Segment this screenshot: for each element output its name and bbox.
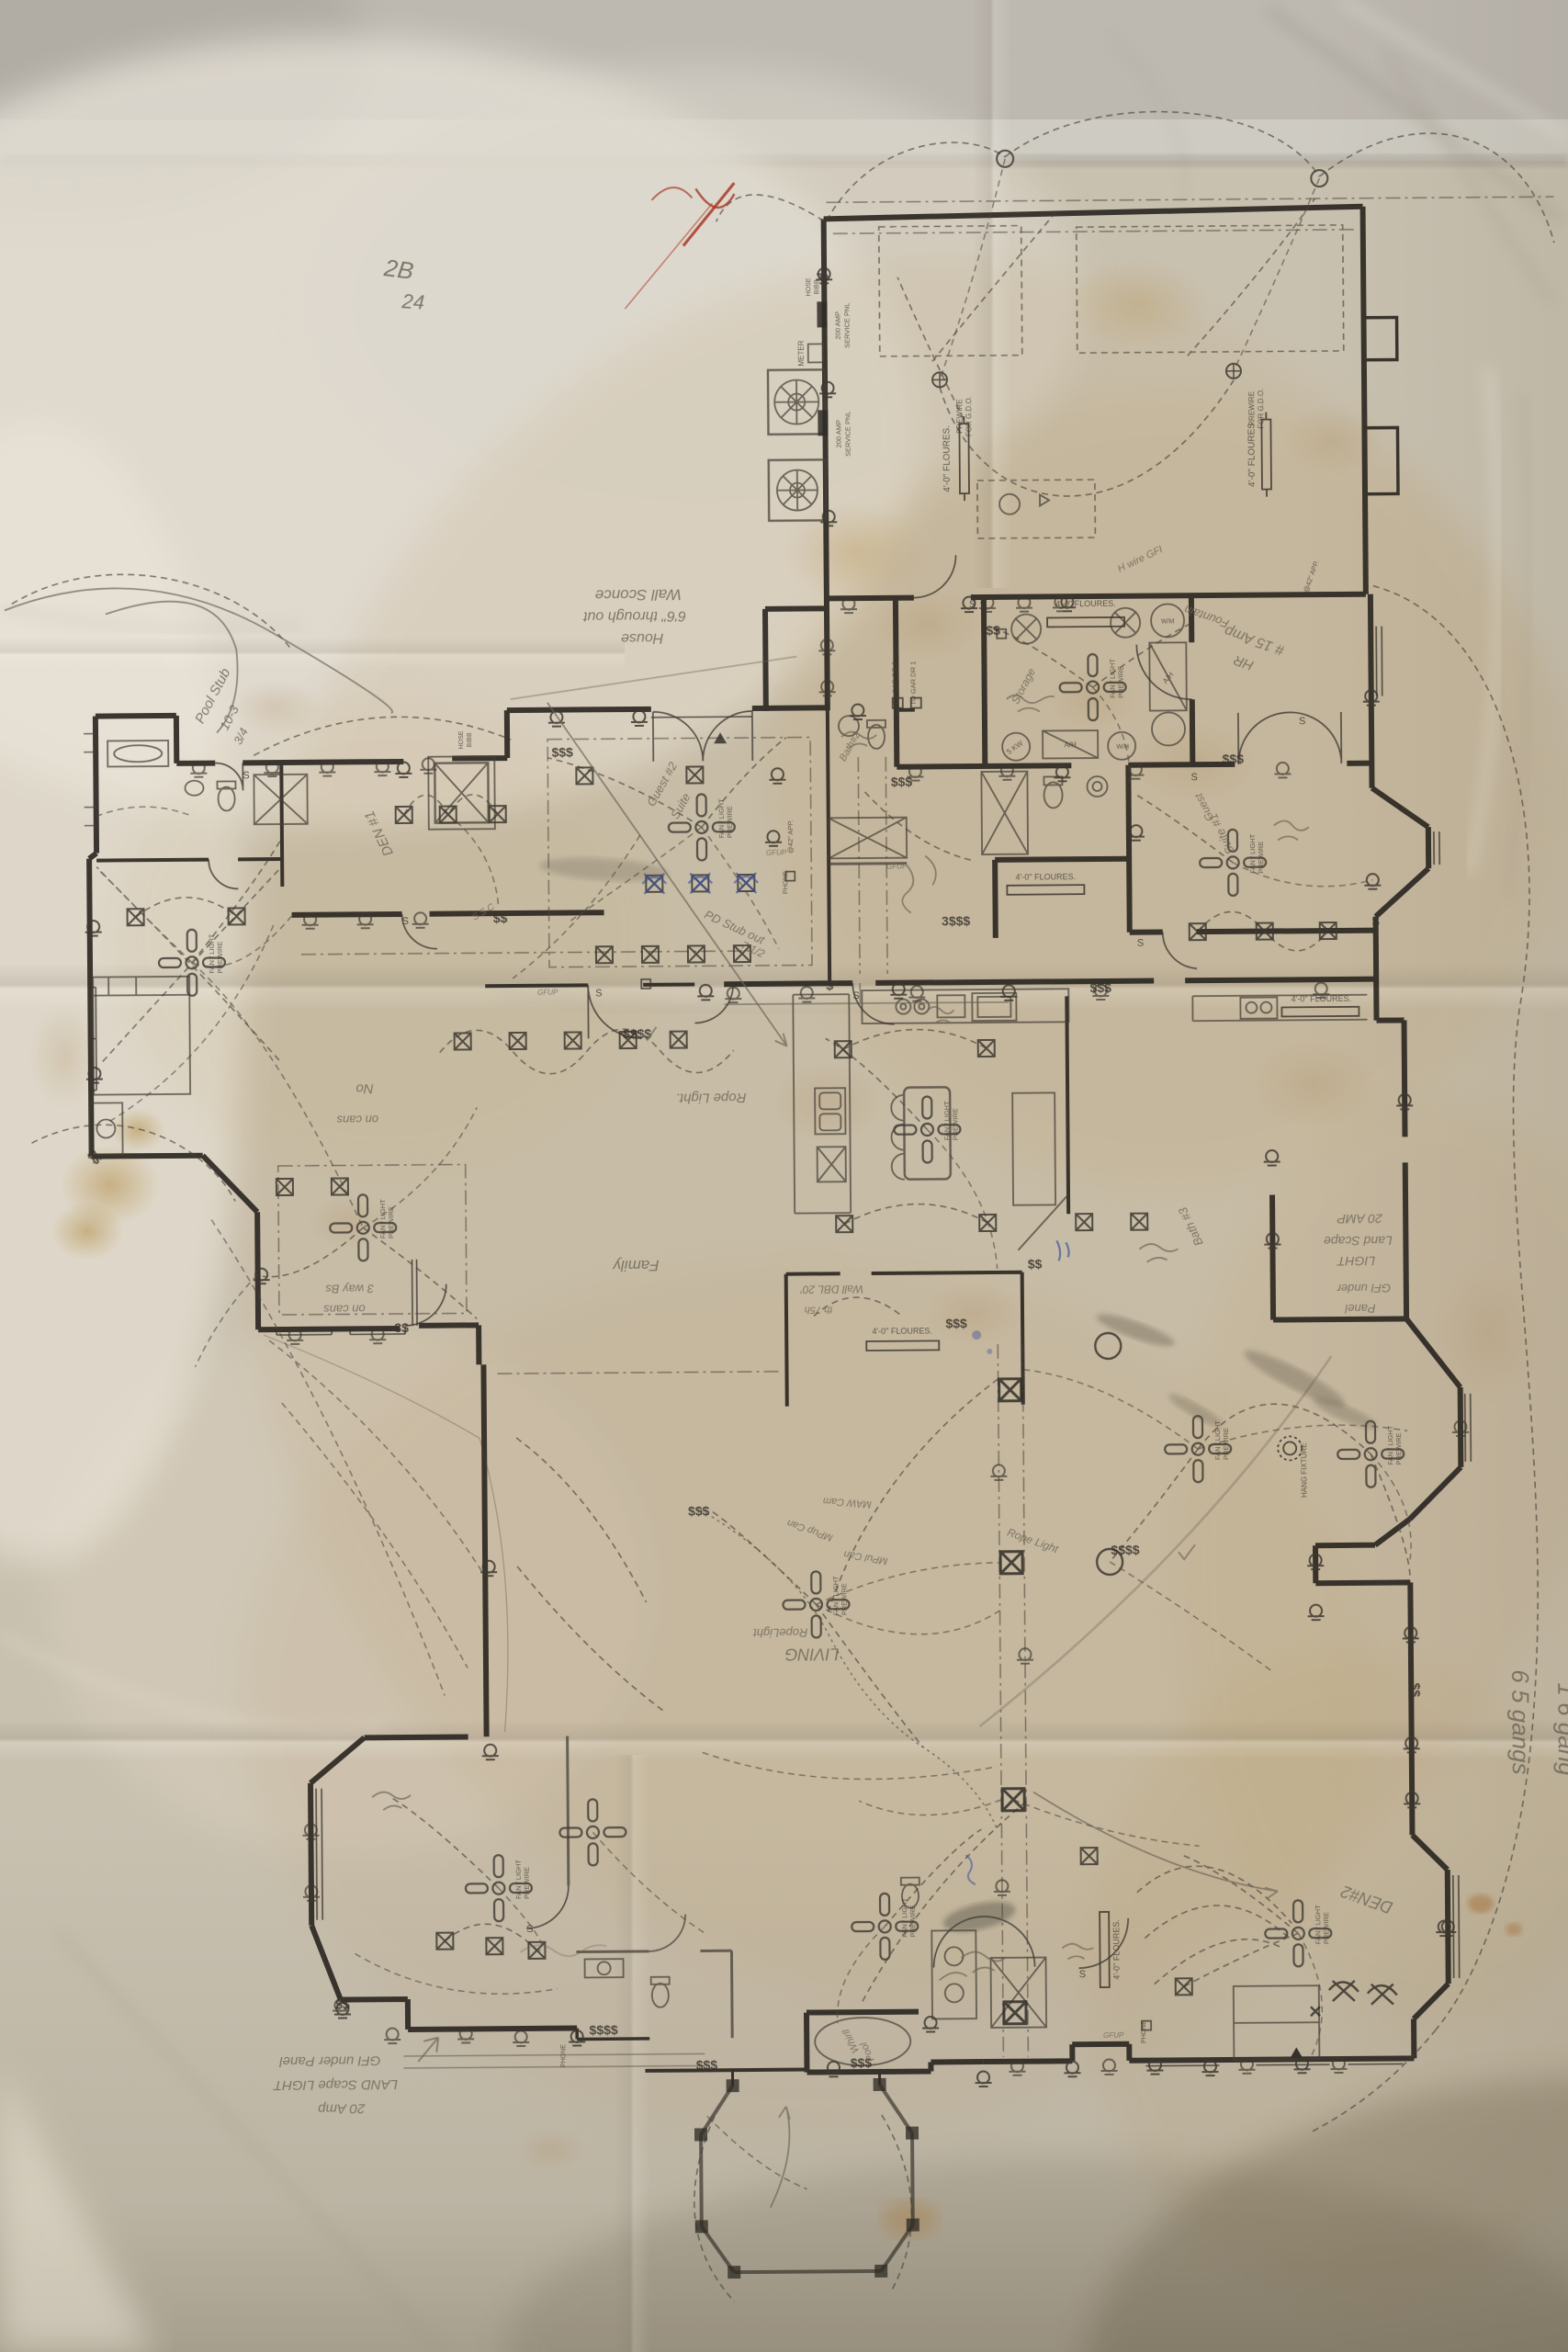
svg-text:GFI under: GFI under xyxy=(1337,1282,1391,1295)
svg-text:on cans: on cans xyxy=(323,1302,366,1316)
svg-text:$$$$: $$$$ xyxy=(1111,1543,1139,1557)
svg-text:FAN / LIGHT: FAN / LIGHT xyxy=(942,1101,951,1140)
svg-text:FAN / LIGHT: FAN / LIGHT xyxy=(378,1199,387,1238)
svg-text:3$: 3$ xyxy=(394,1320,409,1335)
svg-text:FAN / LIGHT: FAN / LIGHT xyxy=(1248,833,1257,873)
svg-text:FAN / LIGHT: FAN / LIGHT xyxy=(831,1576,840,1615)
svg-text:METER: METER xyxy=(797,340,806,366)
svg-text:PREWIRE: PREWIRE xyxy=(840,1583,848,1615)
svg-text:TO GAR DR 2: TO GAR DR 2 xyxy=(890,661,898,706)
svg-text:6 5 gangs: 6 5 gangs xyxy=(1506,1669,1535,1774)
svg-text:PREWIRE: PREWIRE xyxy=(1257,842,1265,874)
svg-text:SERVICE PNL: SERVICE PNL xyxy=(842,302,851,348)
svg-text:20 AMP: 20 AMP xyxy=(1337,1212,1383,1227)
svg-text:th 75h: th 75h xyxy=(805,1304,833,1315)
svg-text:PREWIRE: PREWIRE xyxy=(1322,1912,1330,1944)
svg-text:on cans: on cans xyxy=(336,1113,378,1126)
svg-text:FAN / LIGHT: FAN / LIGHT xyxy=(717,798,726,838)
svg-text:No: No xyxy=(355,1080,373,1096)
svg-text:PREWIRE: PREWIRE xyxy=(523,1867,531,1899)
svg-text:3$$$: 3$$$ xyxy=(942,913,970,928)
svg-text:1 6 gang: 1 6 gang xyxy=(1552,1682,1568,1776)
svg-text:PREWIRE: PREWIRE xyxy=(908,1905,917,1938)
svg-text:GFUP: GFUP xyxy=(537,989,558,997)
svg-text:RopeLight: RopeLight xyxy=(752,1626,808,1640)
svg-text:FAN / LIGHT: FAN / LIGHT xyxy=(900,1897,908,1937)
svg-text:$$$: $$$ xyxy=(1089,980,1111,995)
svg-text:S: S xyxy=(852,990,859,1001)
svg-text:PHONE: PHONE xyxy=(1141,2020,1147,2043)
svg-text:4'-0" FLOURES.: 4'-0" FLOURES. xyxy=(1016,872,1077,882)
svg-text:S: S xyxy=(595,988,602,999)
svg-text:$$$: $$$ xyxy=(688,1503,710,1518)
svg-text:FAN / LIGHT: FAN / LIGHT xyxy=(1314,1905,1322,1944)
svg-text:S: S xyxy=(1299,716,1305,727)
svg-text:Rope Light.: Rope Light. xyxy=(676,1090,747,1106)
svg-text:PREWIRE: PREWIRE xyxy=(951,1108,959,1140)
svg-text:6'6" through out: 6'6" through out xyxy=(582,608,686,625)
svg-text:$: $ xyxy=(1372,914,1380,929)
svg-text:4'-0" FLOURES.: 4'-0" FLOURES. xyxy=(1111,1919,1122,1980)
svg-text:BIBB: BIBB xyxy=(467,732,473,747)
svg-text:W/M: W/M xyxy=(1161,618,1175,625)
svg-text:PREWIRE: PREWIRE xyxy=(726,806,734,838)
svg-text:FAN / LIGHT: FAN / LIGHT xyxy=(514,1860,523,1899)
svg-text:S: S xyxy=(402,916,409,927)
svg-text:SERVICE PNL: SERVICE PNL xyxy=(843,411,852,457)
svg-text:LIVING: LIVING xyxy=(784,1645,839,1663)
svg-text:FAN / LIGHT: FAN / LIGHT xyxy=(1108,659,1116,698)
svg-text:4'-0" FLOURES.: 4'-0" FLOURES. xyxy=(1247,420,1258,487)
svg-text:$$: $$ xyxy=(493,910,508,925)
svg-text:4'-0" FLOURES.: 4'-0" FLOURES. xyxy=(942,425,953,492)
svg-text:FOR G.D.O.: FOR G.D.O. xyxy=(1257,389,1265,429)
svg-text:24: 24 xyxy=(400,289,425,314)
svg-text:S: S xyxy=(1190,772,1197,783)
svg-text:PHONE: PHONE xyxy=(560,2044,567,2067)
svg-text:House: House xyxy=(621,630,663,646)
svg-text:PREWIRE: PREWIRE xyxy=(955,399,964,433)
svg-text:GFI under Panel: GFI under Panel xyxy=(279,2052,381,2069)
svg-text:20 Amp: 20 Amp xyxy=(318,2100,366,2116)
svg-text:GFUP: GFUP xyxy=(766,849,787,857)
svg-text:$$$: $$$ xyxy=(1223,752,1245,766)
svg-text:$$$: $$$ xyxy=(945,1316,967,1330)
svg-text:PREWIRE: PREWIRE xyxy=(1222,1428,1230,1460)
svg-text:TO GAR DR 1: TO GAR DR 1 xyxy=(908,661,917,706)
svg-text:PREWIRE: PREWIRE xyxy=(1247,391,1256,425)
svg-text:PREWIRE: PREWIRE xyxy=(1394,1432,1403,1464)
svg-text:PREWIRE: PREWIRE xyxy=(216,941,224,973)
svg-text:GFUP: GFUP xyxy=(1103,2031,1124,2040)
svg-text:$$: $$ xyxy=(1028,1257,1043,1272)
svg-text:$$: $$ xyxy=(1408,1682,1423,1697)
svg-text:HOSE: HOSE xyxy=(806,277,812,296)
svg-text:$$$: $$$ xyxy=(551,745,573,760)
svg-text:LAND Scape LIGHT: LAND Scape LIGHT xyxy=(272,2076,398,2093)
svg-text:BIBB: BIBB xyxy=(814,279,820,294)
svg-text:PREWIRE: PREWIRE xyxy=(387,1206,395,1238)
svg-text:HANG FIXTURE: HANG FIXTURE xyxy=(1300,1442,1308,1498)
svg-text:200 AMP: 200 AMP xyxy=(833,311,841,340)
svg-text:3 way Bs: 3 way Bs xyxy=(325,1282,374,1295)
svg-text:2B: 2B xyxy=(382,254,415,285)
svg-text:4'-0" FLOURES.: 4'-0" FLOURES. xyxy=(872,1326,932,1336)
svg-text:Land Scape: Land Scape xyxy=(1324,1234,1393,1249)
svg-text:Panel: Panel xyxy=(1344,1302,1375,1316)
svg-text:GFUP: GFUP xyxy=(886,863,908,871)
svg-text:S: S xyxy=(969,599,976,610)
svg-text:A/H: A/H xyxy=(1064,741,1077,749)
svg-text:$$: $$ xyxy=(335,1996,350,2011)
svg-text:@42" APP.: @42" APP. xyxy=(786,820,795,853)
svg-text:PREWIRE: PREWIRE xyxy=(1116,666,1124,698)
svg-text:S: S xyxy=(1079,1969,1086,1980)
svg-text:FOR G.D.O.: FOR G.D.O. xyxy=(964,396,973,436)
svg-text:Family: Family xyxy=(612,1257,660,1274)
svg-text:$$$$: $$$$ xyxy=(589,2022,617,2037)
svg-text:$$$: $$$ xyxy=(891,775,913,789)
svg-text:4'-0" FLOURES.: 4'-0" FLOURES. xyxy=(1055,599,1116,609)
svg-text:$: $ xyxy=(826,978,833,992)
svg-text:200 AMP: 200 AMP xyxy=(834,420,842,448)
svg-text:S: S xyxy=(243,770,249,781)
svg-text:$$$: $$$ xyxy=(696,2057,718,2072)
svg-text:S: S xyxy=(1137,938,1144,949)
svg-text:Wall DBL 20': Wall DBL 20' xyxy=(800,1283,863,1296)
svg-text:PHONE: PHONE xyxy=(783,871,789,894)
svg-text:Wall Sconce: Wall Sconce xyxy=(595,586,682,605)
svg-text:HOSE: HOSE xyxy=(458,730,465,749)
svg-text:FAN / LIGHT: FAN / LIGHT xyxy=(208,933,216,973)
svg-text:$$: $$ xyxy=(986,623,1000,638)
svg-text:LIGHT: LIGHT xyxy=(1336,1254,1375,1269)
svg-text:4'-0" FLOURES.: 4'-0" FLOURES. xyxy=(1292,994,1352,1004)
svg-text:FAN / LIGHT: FAN / LIGHT xyxy=(1386,1425,1394,1464)
